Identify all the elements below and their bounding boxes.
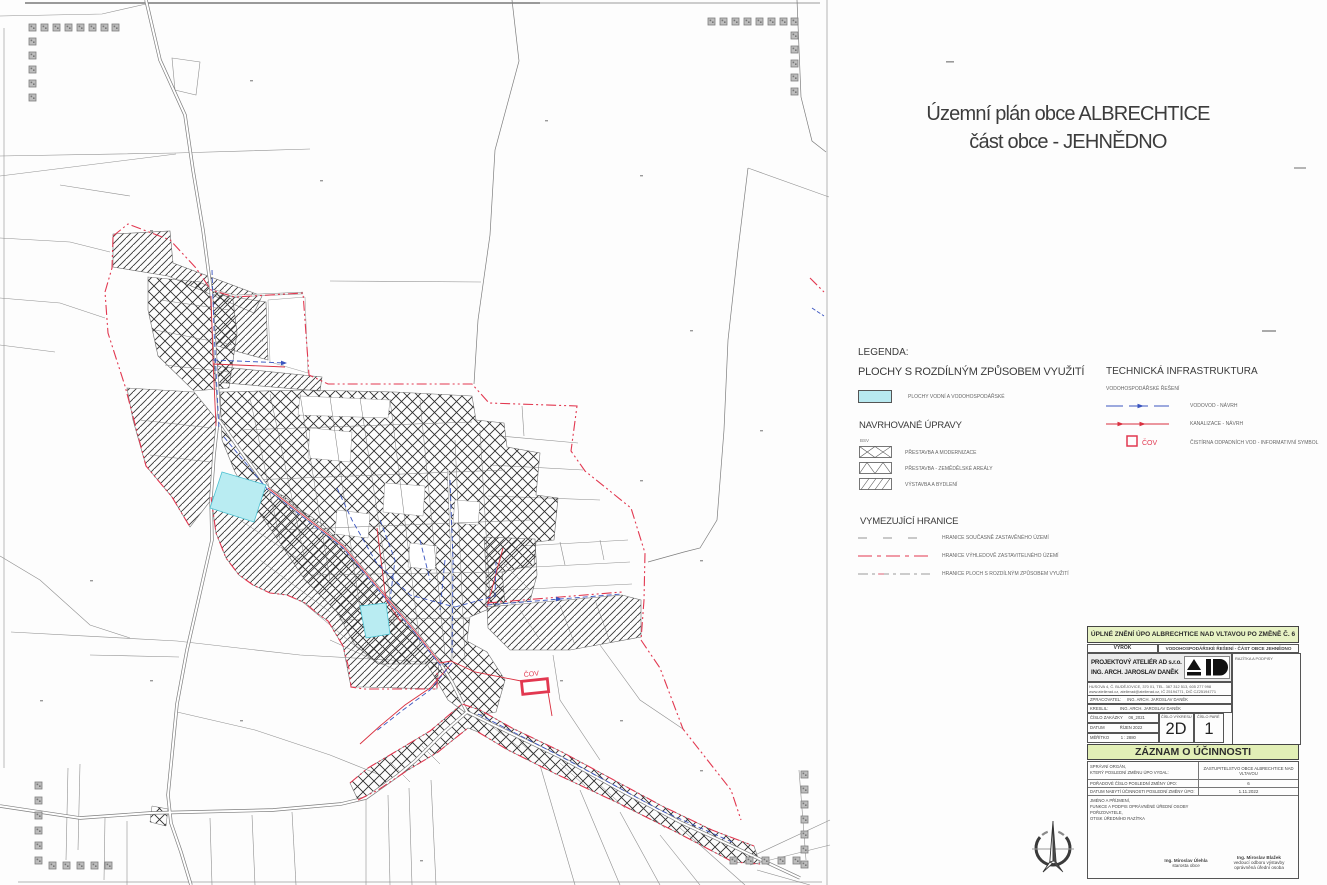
svg-text:ČOV: ČOV — [523, 668, 539, 679]
svg-text:ČOV: ČOV — [1142, 438, 1158, 447]
